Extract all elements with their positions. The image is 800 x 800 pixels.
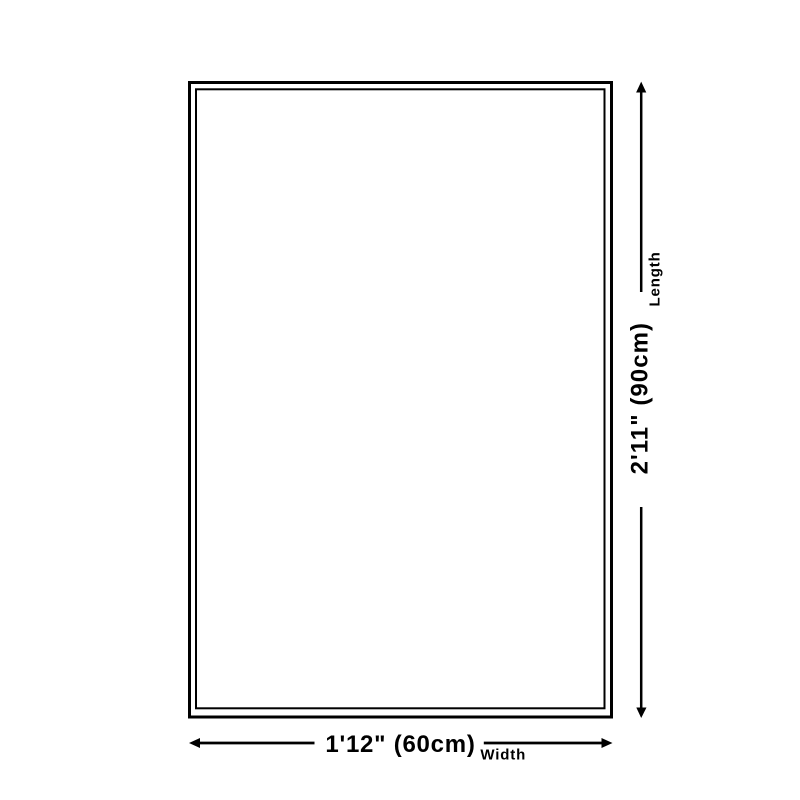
svg-text:Length: Length	[647, 251, 664, 306]
svg-text:2'11" (90cm): 2'11" (90cm)	[627, 322, 654, 474]
svg-text:1'12" (60cm): 1'12" (60cm)	[325, 731, 475, 758]
svg-text:Width: Width	[480, 747, 526, 764]
